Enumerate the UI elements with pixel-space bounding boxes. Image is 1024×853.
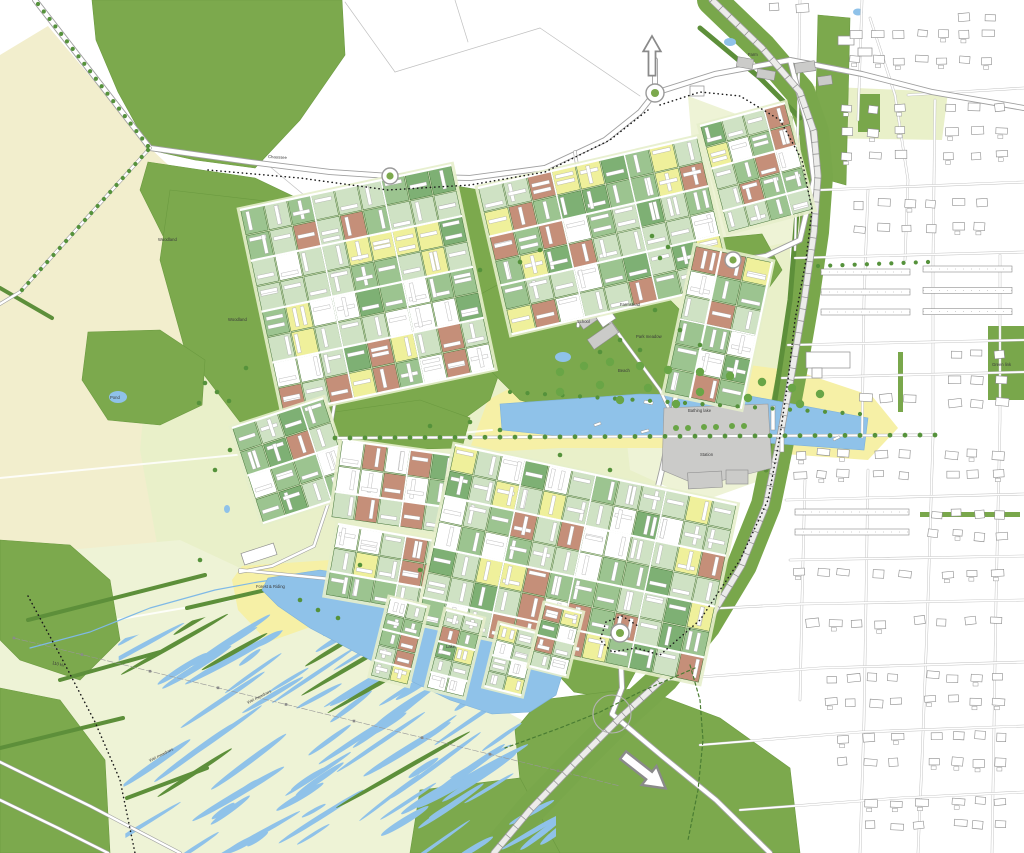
house	[915, 799, 928, 807]
park-tree	[616, 396, 624, 404]
parcel	[332, 492, 357, 520]
house	[973, 760, 984, 768]
house	[904, 395, 917, 403]
hedgerow-tree	[51, 253, 55, 257]
house	[971, 674, 983, 682]
house	[954, 819, 967, 826]
house	[939, 30, 949, 38]
hedgerow-tree	[108, 190, 112, 194]
house	[937, 619, 946, 626]
hedgerow-tree	[718, 403, 722, 407]
hedgerow-tree	[683, 401, 687, 405]
house	[873, 470, 884, 477]
boulevard-tree	[468, 435, 473, 440]
hedgerow-tree	[105, 92, 109, 96]
hedgerow-tree	[770, 406, 774, 410]
boulevard-tree	[333, 436, 338, 441]
house	[995, 511, 1005, 520]
house	[769, 3, 779, 11]
hedgerow-tree	[123, 114, 127, 118]
house	[867, 128, 879, 137]
parcel	[376, 556, 401, 582]
hedgerow-tree	[26, 281, 30, 285]
house	[902, 225, 911, 232]
micro-label: Park meadow	[636, 334, 663, 339]
house	[818, 568, 830, 576]
shed	[955, 537, 960, 541]
house	[817, 448, 830, 456]
hedgerow-tree	[146, 148, 150, 152]
house	[865, 799, 878, 807]
tree	[316, 608, 321, 613]
hedgerow-tree	[858, 412, 862, 416]
parcel	[339, 441, 364, 469]
hedgerow-tree	[543, 392, 547, 396]
hedgerow-tree	[36, 2, 40, 6]
town-block	[859, 393, 916, 403]
micro-label: Pond	[110, 395, 120, 400]
house	[927, 671, 940, 679]
hedgerow-tree	[823, 410, 827, 414]
house	[890, 801, 902, 808]
hedgerow-tree	[65, 39, 69, 43]
house	[970, 698, 982, 705]
house	[871, 31, 884, 38]
power-pylon	[149, 670, 152, 673]
house	[845, 699, 855, 707]
hedgerow-tree	[83, 218, 87, 222]
hedgerow-tree	[140, 155, 144, 159]
house	[869, 152, 881, 159]
boulevard-tree	[543, 435, 548, 440]
roundabout-island	[651, 89, 659, 97]
boulevard-tree	[438, 435, 443, 440]
parcel	[385, 447, 410, 475]
shed	[895, 66, 900, 70]
house	[974, 532, 985, 541]
boulevard-tree	[768, 433, 773, 438]
shed	[877, 630, 882, 634]
micro-label: Chaussee	[268, 154, 288, 160]
house	[952, 798, 965, 805]
power-pylon	[81, 653, 84, 656]
shed	[907, 209, 912, 213]
tree	[653, 308, 658, 313]
boulevard-tree	[633, 434, 638, 439]
hedgerow-tree	[630, 398, 634, 402]
hedgerow-tree	[42, 9, 46, 13]
power-pylon	[421, 736, 424, 739]
house	[898, 570, 911, 578]
house	[837, 735, 848, 743]
park-tree	[758, 378, 766, 386]
tree	[650, 234, 655, 239]
station-tree	[713, 424, 719, 430]
power-pylon	[217, 687, 220, 690]
house	[967, 570, 977, 576]
parcel	[335, 525, 360, 551]
house	[929, 758, 939, 765]
boulevard-tree	[873, 433, 878, 438]
micro-label: Farmstead	[620, 302, 641, 307]
boulevard-tree	[423, 435, 428, 440]
house	[825, 697, 837, 705]
house	[942, 571, 954, 579]
house	[993, 469, 1004, 477]
park-tree	[606, 358, 614, 366]
station-tree	[701, 424, 707, 430]
hedgerow-tree	[59, 32, 63, 36]
hedgerow-tree	[788, 408, 792, 412]
house	[995, 821, 1006, 828]
shed	[954, 806, 959, 810]
house	[794, 472, 807, 480]
tree	[608, 468, 613, 473]
tree	[478, 268, 483, 273]
hedgerow-tree	[20, 288, 24, 292]
boulevard-tree	[648, 434, 653, 439]
tree	[198, 558, 203, 563]
hedgerow-tree	[102, 197, 106, 201]
tree	[558, 453, 563, 458]
gray-building	[726, 470, 748, 484]
parcel	[330, 548, 355, 574]
house	[992, 451, 1005, 460]
house	[975, 797, 986, 805]
shed	[941, 38, 946, 42]
hedgerow-tree	[47, 17, 51, 21]
house	[899, 472, 909, 480]
terraced-row	[821, 309, 910, 315]
power-pylon	[285, 703, 288, 706]
boulevard-tree	[498, 435, 503, 440]
hedgerow-tree	[133, 162, 137, 166]
boulevard-tree	[813, 433, 818, 438]
house	[994, 798, 1006, 805]
house	[878, 223, 890, 231]
house	[847, 673, 861, 682]
house	[837, 757, 847, 766]
boulevard-tree	[888, 433, 893, 438]
house	[951, 509, 961, 516]
shed	[875, 64, 880, 68]
power-pylon	[489, 753, 492, 756]
boulevard-tree	[678, 434, 683, 439]
house	[891, 824, 904, 831]
hedgerow-tree	[76, 54, 80, 58]
hedgerow-tree	[840, 263, 844, 267]
hedgerow-tree	[853, 263, 857, 267]
house	[936, 58, 946, 64]
boulevard-tree	[528, 435, 533, 440]
park-tree	[636, 362, 644, 370]
shed	[843, 161, 848, 165]
parcel	[326, 572, 351, 598]
shed	[939, 65, 944, 69]
boulevard-tree	[933, 433, 938, 438]
pond	[555, 352, 571, 362]
house	[878, 198, 890, 206]
house	[953, 731, 964, 739]
boulevard-tree	[603, 434, 608, 439]
park-tree	[726, 372, 734, 380]
station-tree	[741, 423, 747, 429]
shed	[897, 134, 902, 138]
house	[851, 620, 862, 628]
house	[796, 3, 809, 12]
shed	[976, 231, 981, 235]
parcel	[407, 450, 432, 478]
boulevard-tree	[573, 434, 578, 439]
tree	[538, 248, 543, 253]
house	[842, 128, 853, 136]
boulevard-tree	[708, 434, 713, 439]
shed	[955, 231, 960, 235]
shed	[998, 135, 1003, 139]
boulevard-tree	[663, 434, 668, 439]
hedgerow-tree	[71, 47, 75, 51]
shed	[984, 66, 989, 70]
shed	[897, 113, 902, 117]
tree	[298, 598, 303, 603]
hedgerow-tree	[117, 107, 121, 111]
parcel	[404, 476, 429, 504]
parcel	[381, 473, 406, 501]
hedgerow-tree	[129, 121, 133, 125]
hedgerow-tree	[100, 84, 104, 88]
boulevard-tree	[858, 433, 863, 438]
shed	[917, 807, 922, 811]
house	[841, 105, 852, 112]
house	[992, 698, 1005, 706]
micro-label: Lake	[446, 644, 456, 649]
house	[971, 153, 981, 160]
micro-label: Station	[700, 452, 714, 457]
house	[948, 376, 961, 384]
house	[890, 698, 901, 705]
shed	[927, 703, 932, 707]
shed	[892, 808, 897, 812]
station-tree	[673, 425, 679, 431]
house	[949, 695, 959, 702]
house	[817, 470, 827, 478]
tree	[678, 328, 683, 333]
micro-label: Green link	[992, 362, 1012, 367]
tree	[244, 366, 249, 371]
shed	[969, 578, 974, 582]
house	[972, 820, 983, 829]
tree	[227, 399, 232, 404]
house	[865, 821, 875, 829]
house	[982, 30, 994, 37]
park-tree	[816, 390, 824, 398]
shed	[799, 460, 804, 464]
boulevard-tree	[783, 433, 788, 438]
house	[975, 731, 986, 740]
hedgerow-tree	[700, 402, 704, 406]
tree	[698, 343, 703, 348]
park-tree	[696, 388, 704, 396]
house	[899, 450, 910, 459]
house	[868, 105, 878, 114]
house	[994, 103, 1004, 112]
house	[951, 351, 962, 358]
hedgerow-tree	[901, 261, 905, 265]
shed	[945, 161, 950, 165]
hedgerow-tree	[865, 262, 869, 266]
park-tree	[744, 394, 752, 402]
shed	[843, 113, 848, 117]
house	[931, 733, 942, 740]
house	[994, 350, 1005, 359]
micro-label: Forest & Riding	[256, 584, 286, 589]
shed	[931, 766, 936, 770]
house	[895, 150, 907, 158]
hedgerow-tree	[88, 69, 92, 73]
masterplan-map: ChausseeWoodlandWoodlandPondSchoolFarmst…	[0, 0, 1024, 853]
house	[854, 201, 863, 209]
tree	[228, 448, 233, 453]
house	[854, 226, 866, 234]
gray-building	[688, 471, 723, 489]
hedgerow-tree	[840, 411, 844, 415]
shed	[975, 768, 980, 772]
park-tree	[672, 400, 680, 408]
house	[991, 569, 1004, 576]
micro-label: Woodland	[158, 237, 177, 242]
boulevard-tree	[348, 436, 353, 441]
housing-cluster-nw	[236, 162, 498, 417]
hedgerow-tree	[926, 260, 930, 264]
boulevard-tree	[903, 433, 908, 438]
park-tree	[664, 366, 672, 374]
boulevard-tree	[363, 435, 368, 440]
house	[879, 393, 892, 403]
boulevard-tree	[918, 433, 923, 438]
shed	[961, 39, 966, 43]
boulevard-tree	[723, 434, 728, 439]
house	[946, 128, 959, 136]
hedgerow-tree	[578, 394, 582, 398]
house	[953, 529, 963, 536]
hedgerow-tree	[96, 204, 100, 208]
house	[952, 757, 964, 766]
park-tree	[796, 400, 804, 408]
house	[970, 350, 981, 356]
station-tree	[685, 425, 691, 431]
shed	[819, 479, 824, 483]
house	[925, 200, 935, 208]
hedgerow-tree	[64, 239, 68, 243]
boulevard-tree	[408, 435, 413, 440]
boulevard-tree	[798, 433, 803, 438]
hedgerow-tree	[114, 183, 118, 187]
house	[849, 55, 860, 62]
house	[870, 699, 884, 708]
hedgerow-tree	[45, 260, 49, 264]
shed	[948, 137, 953, 141]
house	[943, 153, 953, 160]
house	[995, 758, 1006, 767]
tree	[598, 350, 603, 355]
roundabout-island	[729, 256, 736, 263]
hedgerow-tree	[140, 136, 144, 140]
tree	[358, 563, 363, 568]
park-tree	[580, 362, 588, 370]
park-tree	[596, 381, 604, 389]
boulevard-tree	[828, 433, 833, 438]
outlined-building	[858, 48, 872, 56]
house	[968, 103, 980, 111]
parcel	[353, 552, 378, 578]
house	[946, 104, 956, 111]
parcel	[335, 466, 360, 494]
park-tree	[556, 368, 564, 376]
house	[864, 759, 877, 767]
boulevard-tree	[843, 433, 848, 438]
house	[873, 55, 884, 63]
parcel	[355, 495, 380, 523]
house	[913, 821, 924, 829]
boulevard-tree	[453, 435, 458, 440]
boulevard-tree	[618, 434, 623, 439]
parcel	[349, 576, 374, 602]
house	[894, 104, 905, 112]
green-strip-rect	[898, 352, 903, 412]
house	[893, 58, 904, 65]
house	[948, 398, 962, 408]
station-tree	[729, 423, 735, 429]
tree	[336, 616, 341, 621]
shed	[969, 458, 974, 462]
house	[827, 677, 837, 683]
shed	[893, 741, 898, 745]
hedgerow-tree	[53, 24, 57, 28]
house	[996, 532, 1008, 540]
house	[928, 529, 939, 538]
pond	[224, 505, 230, 513]
house	[924, 695, 935, 702]
house	[918, 30, 928, 37]
hedgerow-tree	[525, 391, 529, 395]
boulevard-tree	[483, 435, 488, 440]
hedgerow-tree	[877, 262, 881, 266]
micro-label: School	[577, 319, 590, 324]
house	[891, 733, 904, 740]
boulevard-tree	[393, 435, 398, 440]
tree	[197, 401, 202, 406]
hedgerow-tree	[70, 232, 74, 236]
shed	[852, 63, 857, 67]
house	[796, 451, 806, 459]
tree	[213, 468, 218, 473]
shed	[997, 768, 1002, 772]
boulevard-tree	[738, 434, 743, 439]
hedgerow-tree	[595, 395, 599, 399]
house	[859, 393, 872, 402]
house	[995, 397, 1009, 406]
hedgerow-tree	[127, 169, 131, 173]
hedgerow-tree	[753, 405, 757, 409]
tree	[418, 568, 423, 573]
parcel	[380, 533, 405, 559]
house	[996, 150, 1008, 156]
shed	[840, 744, 845, 748]
house	[953, 223, 965, 230]
terraced-row	[821, 269, 910, 275]
house	[975, 510, 985, 519]
terraced-row	[821, 289, 910, 295]
